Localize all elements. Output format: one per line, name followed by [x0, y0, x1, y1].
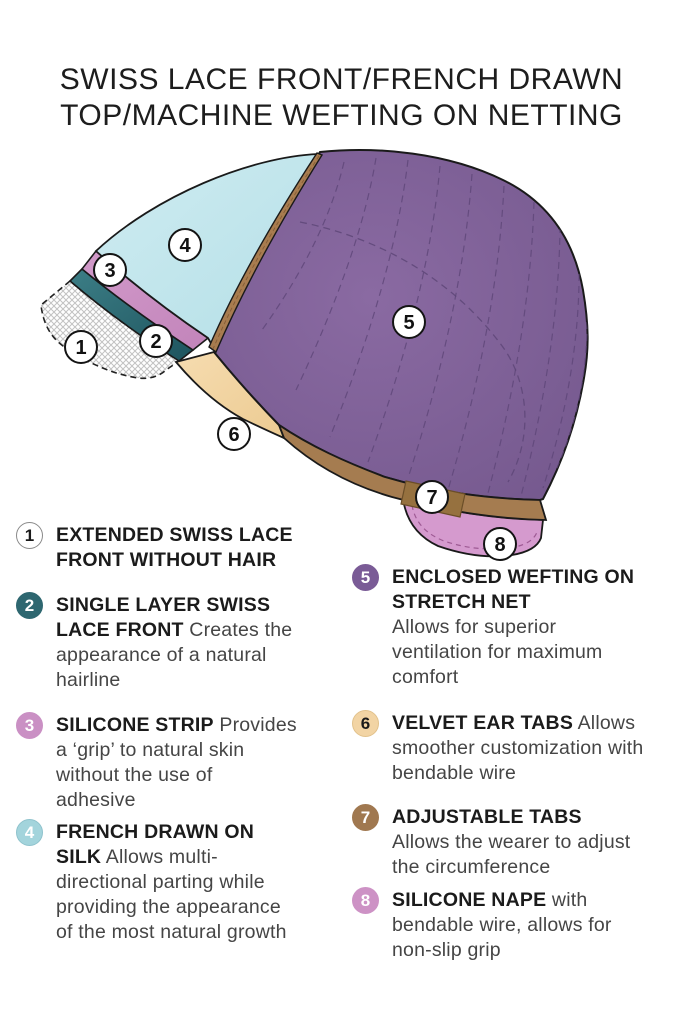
legend-circle-2: 2 — [16, 592, 43, 619]
legend-text-3: SILICONE STRIP Provides a ‘grip’ to natu… — [56, 713, 297, 813]
marker-3: 3 — [94, 254, 126, 286]
region-french-drawn-silk — [96, 154, 318, 345]
marker-6: 6 — [218, 418, 250, 450]
region-swiss-lace-front — [70, 269, 193, 361]
legend-text-2: SINGLE LAYER SWISS LACE FRONT Creates th… — [56, 593, 297, 693]
legend-item-4: 4 FRENCH DRAWN ON SILK Allows multi-dire… — [16, 820, 297, 945]
svg-text:2: 2 — [150, 331, 161, 353]
region-silicone-nape — [403, 499, 543, 556]
svg-text:8: 8 — [494, 534, 505, 556]
svg-text:3: 3 — [104, 260, 115, 282]
marker-5: 5 — [393, 306, 425, 338]
legend-item-3: 3 SILICONE STRIP Provides a ‘grip’ to na… — [16, 713, 297, 813]
legend-item-7: 7 ADJUSTABLE TABS Allows the wearer to a… — [352, 805, 651, 880]
legend-text-6: VELVET EAR TABS Allows smoother customiz… — [392, 711, 651, 786]
marker-8: 8 — [484, 528, 516, 560]
legend-text-1: EXTENDED SWISS LACE FRONT WITHOUT HAIR — [56, 523, 297, 573]
marker-2: 2 — [140, 325, 172, 357]
legend-item-2: 2 SINGLE LAYER SWISS LACE FRONT Creates … — [16, 593, 297, 693]
legend-circle-5: 5 — [352, 564, 379, 591]
legend-item-1: 1 EXTENDED SWISS LACE FRONT WITHOUT HAIR — [16, 523, 297, 573]
legend-text-4: FRENCH DRAWN ON SILK Allows multi-direct… — [56, 820, 297, 945]
legend-circle-1: 1 — [16, 522, 43, 549]
svg-text:6: 6 — [228, 424, 239, 446]
region-wefting-stretch-net — [214, 150, 588, 500]
legend-circle-4: 4 — [16, 819, 43, 846]
legend-circle-3: 3 — [16, 712, 43, 739]
legend-item-5: 5 ENCLOSED WEFTING ON STRETCH NET Allows… — [352, 565, 651, 690]
svg-text:7: 7 — [426, 487, 437, 509]
svg-text:1: 1 — [75, 337, 86, 359]
region-extended-swiss-lace — [41, 281, 179, 378]
title-line-1: SWISS LACE FRONT/FRENCH DRAWN — [0, 62, 683, 98]
title-line-2: TOP/MACHINE WEFTING ON NETTING — [0, 98, 683, 134]
diagram-markers: 1 2 3 4 5 6 7 8 — [65, 229, 516, 560]
nape-stitch-line — [412, 505, 537, 549]
legend-circle-6: 6 — [352, 710, 379, 737]
legend-item-6: 6 VELVET EAR TABS Allows smoother custom… — [352, 711, 651, 786]
page-title: SWISS LACE FRONT/FRENCH DRAWN TOP/MACHIN… — [0, 62, 683, 134]
svg-text:5: 5 — [403, 312, 414, 334]
crown-seam-dashed — [300, 222, 525, 482]
marker-4: 4 — [169, 229, 201, 261]
front-seam-strip — [209, 153, 322, 352]
marker-7: 7 — [416, 481, 448, 513]
svg-text:4: 4 — [179, 235, 191, 257]
region-silicone-strip — [82, 251, 208, 350]
front-seam-stitch — [213, 156, 319, 349]
legend-text-8: SILICONE NAPE with bendable wire, allows… — [392, 888, 651, 963]
legend-circle-7: 7 — [352, 804, 379, 831]
region-velvet-ear-tab — [176, 352, 284, 438]
legend-text-7: ADJUSTABLE TABS Allows the wearer to adj… — [392, 805, 651, 880]
legend-item-8: 8 SILICONE NAPE with bendable wire, allo… — [352, 888, 651, 963]
wefting-lines — [262, 158, 587, 500]
region-adjustable-band — [279, 425, 546, 520]
adjustable-tab — [401, 481, 465, 517]
legend-circle-8: 8 — [352, 887, 379, 914]
legend-text-5: ENCLOSED WEFTING ON STRETCH NET Allows f… — [392, 565, 651, 690]
marker-1: 1 — [65, 331, 97, 363]
